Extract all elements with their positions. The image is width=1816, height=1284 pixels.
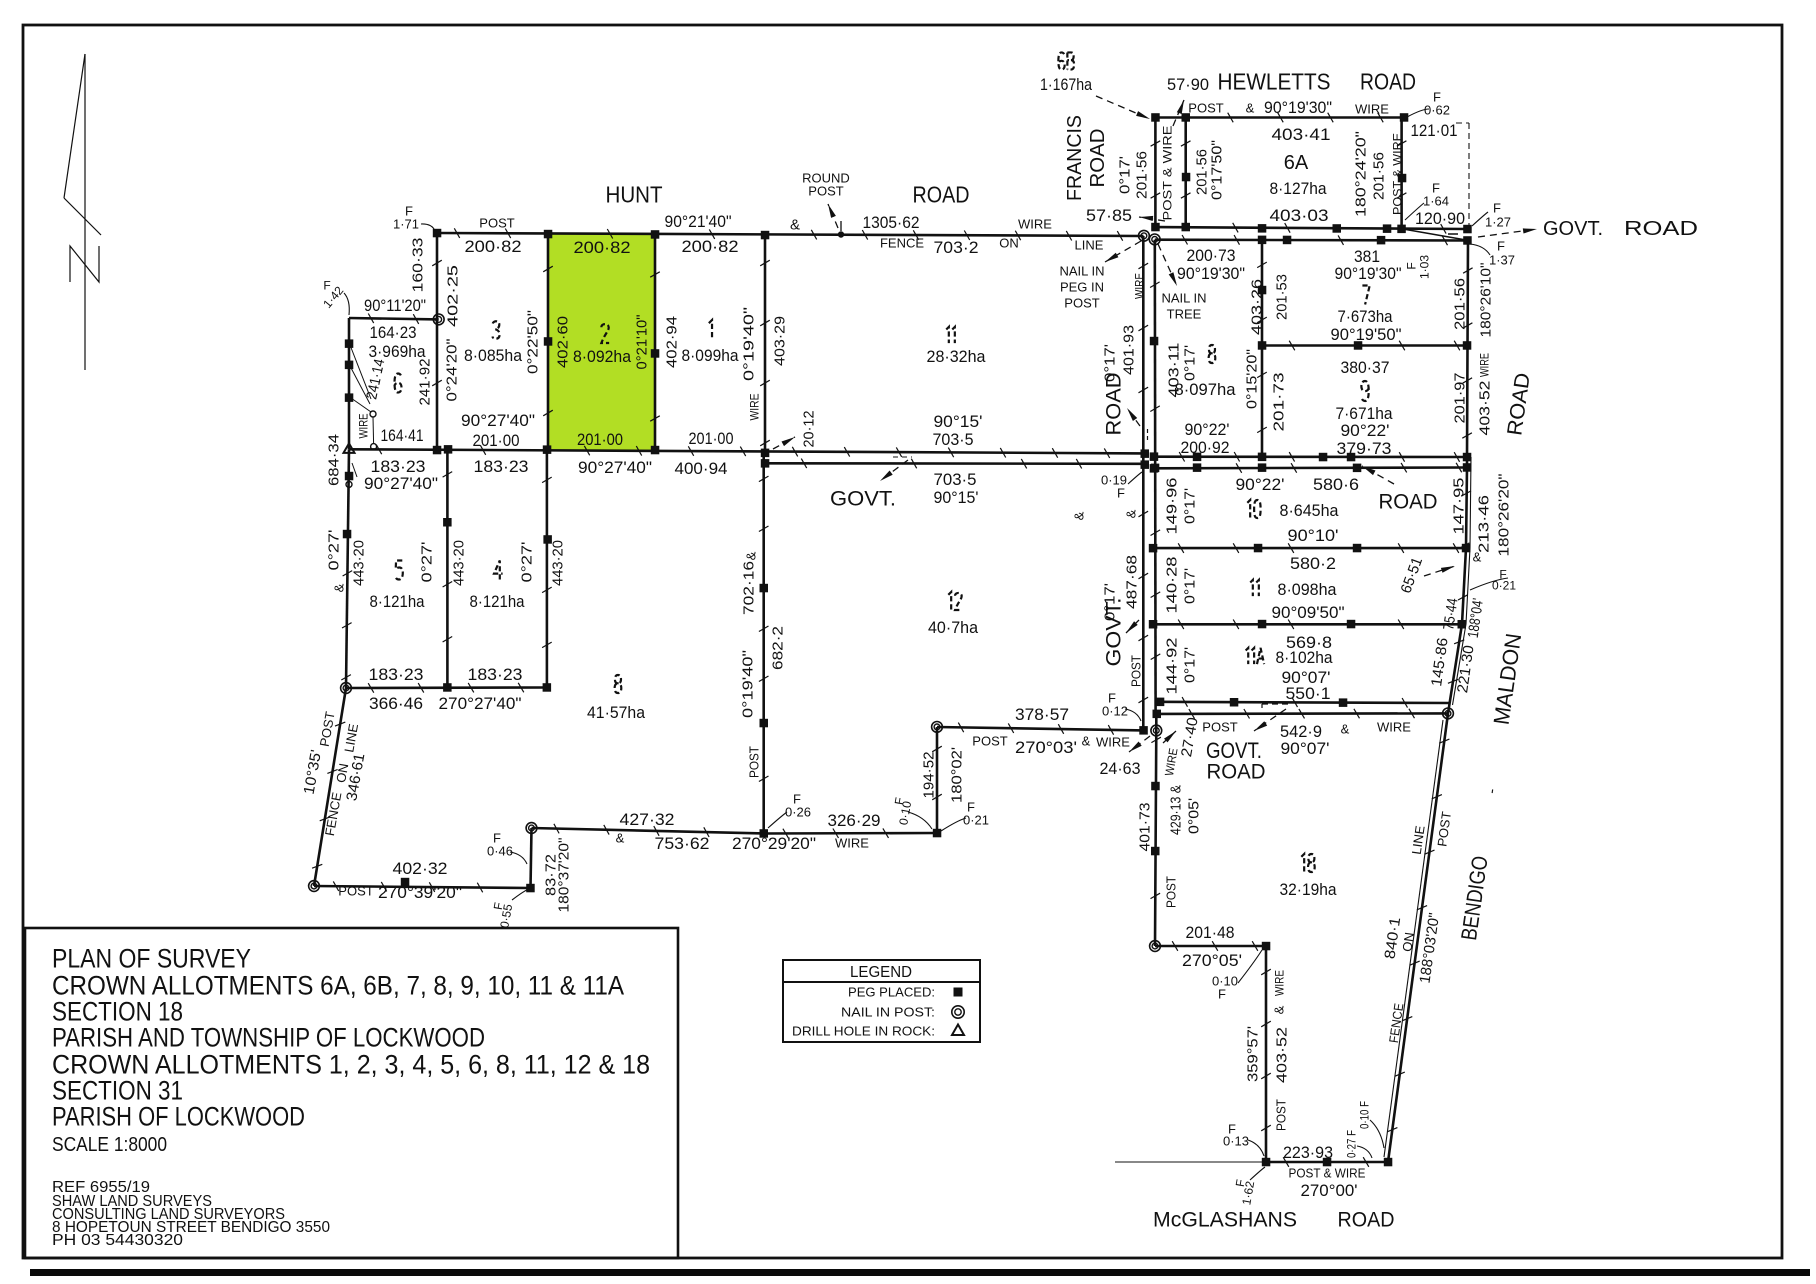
- svg-text:0°27': 0°27': [325, 529, 342, 570]
- svg-text:0°22'50": 0°22'50": [524, 310, 541, 374]
- svg-text:0·10 F: 0·10 F: [1357, 1101, 1371, 1129]
- svg-text:90°27'40": 90°27'40": [364, 474, 438, 493]
- svg-text:403·03: 403·03: [1270, 206, 1329, 225]
- svg-text:8·098ha: 8·098ha: [1278, 580, 1338, 599]
- svg-text:8·102ha: 8·102ha: [1276, 648, 1333, 667]
- svg-text:90°19'30": 90°19'30": [1335, 264, 1402, 283]
- svg-text:F: F: [1497, 239, 1505, 254]
- svg-text:PEG IN: PEG IN: [1060, 280, 1104, 295]
- svg-text:443·20: 443·20: [350, 540, 367, 586]
- svg-text:403·41: 403·41: [1272, 125, 1331, 144]
- svg-text:8·127ha: 8·127ha: [1270, 179, 1327, 198]
- svg-text:SCALE 1:8000: SCALE 1:8000: [52, 1134, 167, 1156]
- svg-text:223·93: 223·93: [1283, 1143, 1333, 1162]
- svg-text:703·5: 703·5: [933, 430, 974, 449]
- svg-text:180°26'10": 180°26'10": [1477, 263, 1494, 338]
- svg-text:90°21'40": 90°21'40": [665, 212, 732, 231]
- svg-text:&: &: [1072, 511, 1087, 520]
- svg-text:ON: ON: [1399, 931, 1417, 952]
- svg-text:703·5: 703·5: [934, 470, 977, 489]
- svg-text:402·32: 402·32: [393, 859, 448, 878]
- svg-text:378·57: 378·57: [1015, 705, 1069, 724]
- svg-text:1·71: 1·71: [393, 217, 419, 232]
- svg-text:180°26'20": 180°26'20": [1495, 474, 1512, 557]
- svg-text:120·90: 120·90: [1415, 209, 1465, 228]
- svg-text:200·73: 200·73: [1187, 246, 1236, 265]
- svg-text:0°27': 0°27': [518, 541, 535, 582]
- svg-text:F: F: [1218, 987, 1226, 1002]
- svg-text:403·26: 403·26: [1248, 279, 1265, 335]
- svg-text:PARISH OF LOCKWOOD: PARISH OF LOCKWOOD: [52, 1102, 305, 1132]
- svg-text:24·63: 24·63: [1100, 759, 1141, 778]
- svg-text:90°27'40": 90°27'40": [461, 411, 535, 430]
- svg-text:403·52: 403·52: [1476, 381, 1493, 436]
- svg-text:201·56: 201·56: [1370, 152, 1387, 200]
- svg-text:0°17'50": 0°17'50": [1208, 140, 1225, 200]
- svg-text:WIRE: WIRE: [1477, 353, 1491, 377]
- svg-text:1·03: 1·03: [1417, 255, 1431, 279]
- svg-text:90°07': 90°07': [1281, 739, 1330, 758]
- svg-text:1·64: 1·64: [1423, 194, 1449, 209]
- svg-text:201·97: 201·97: [1451, 373, 1468, 424]
- svg-text:8·099ha: 8·099ha: [682, 346, 739, 365]
- svg-text:POST: POST: [1188, 101, 1223, 116]
- svg-text:427·32: 427·32: [620, 810, 675, 829]
- svg-text:NAIL IN: NAIL IN: [1059, 264, 1104, 279]
- svg-text:270°03': 270°03': [1015, 738, 1077, 757]
- svg-text:0°17': 0°17': [1181, 568, 1198, 604]
- svg-text:FENCE: FENCE: [880, 236, 924, 251]
- svg-text:366·46: 366·46: [369, 694, 423, 713]
- svg-text:121·01: 121·01: [1411, 121, 1458, 140]
- svg-text:270°39'20": 270°39'20": [378, 883, 462, 902]
- svg-text:41·57ha: 41·57ha: [587, 703, 646, 722]
- svg-text:90°22': 90°22': [1236, 475, 1285, 494]
- svg-text:&: &: [1246, 101, 1255, 116]
- svg-text:0·12: 0·12: [1102, 704, 1128, 719]
- svg-text:0·26: 0·26: [785, 805, 811, 820]
- svg-text:6A: 6A: [1284, 152, 1309, 174]
- svg-text:0·27 F: 0·27 F: [1344, 1130, 1358, 1158]
- svg-text:57·90: 57·90: [1167, 75, 1209, 94]
- svg-text:PEG PLACED:: PEG PLACED:: [848, 985, 935, 1000]
- svg-text:550·1: 550·1: [1286, 684, 1331, 703]
- svg-text:0°27': 0°27': [418, 541, 435, 582]
- svg-text:&: &: [1082, 734, 1091, 749]
- svg-text:WIRE: WIRE: [1272, 970, 1286, 996]
- svg-text:POST: POST: [747, 746, 762, 778]
- svg-text:HEWLETTS: HEWLETTS: [1218, 68, 1331, 94]
- svg-text:201·48: 201·48: [1186, 923, 1235, 942]
- svg-text:164·41: 164·41: [381, 426, 424, 445]
- svg-text:8·121ha: 8·121ha: [370, 592, 425, 611]
- svg-text:POST & WIRE: POST & WIRE: [1289, 1166, 1366, 1181]
- svg-text:201·56: 201·56: [1133, 151, 1150, 199]
- svg-text:326·29: 326·29: [828, 811, 881, 830]
- svg-text:90°09'50": 90°09'50": [1272, 603, 1345, 622]
- svg-text:403·52: 403·52: [1273, 1027, 1290, 1083]
- svg-text:0°21'10": 0°21'10": [633, 315, 650, 370]
- svg-text:POST & WIRE: POST & WIRE: [1160, 126, 1174, 221]
- svg-text:429·13 &: 429·13 &: [1167, 785, 1184, 835]
- svg-text:0°05': 0°05': [1185, 798, 1202, 834]
- svg-text:401·73: 401·73: [1136, 803, 1153, 852]
- svg-text:487·68: 487·68: [1123, 555, 1140, 609]
- svg-text:32·19ha: 32·19ha: [1280, 880, 1337, 899]
- svg-text:POST: POST: [1202, 720, 1237, 735]
- svg-text:PH 03 54430320: PH 03 54430320: [52, 1232, 183, 1249]
- svg-text:WIRE: WIRE: [1355, 102, 1389, 117]
- svg-text:&: &: [1341, 722, 1350, 737]
- svg-text:POST: POST: [1064, 296, 1099, 311]
- svg-text:7·673ha: 7·673ha: [1338, 307, 1393, 326]
- svg-text:149·96: 149·96: [1163, 478, 1180, 535]
- svg-text:90°22': 90°22': [1185, 420, 1230, 439]
- svg-text:147·95: 147·95: [1450, 478, 1467, 535]
- svg-text:WIRE: WIRE: [1096, 735, 1130, 750]
- svg-text:90°11'20": 90°11'20": [364, 296, 426, 315]
- svg-text:90°10': 90°10': [1288, 526, 1339, 545]
- svg-text:0°19'40": 0°19'40": [739, 650, 756, 718]
- svg-text:3·969ha: 3·969ha: [369, 342, 426, 361]
- svg-text:0°17': 0°17': [1181, 345, 1198, 381]
- svg-text:POST: POST: [1164, 876, 1179, 908]
- svg-text:ROAD: ROAD: [1087, 129, 1109, 188]
- svg-text:144·92: 144·92: [1163, 638, 1180, 695]
- svg-text:&: &: [616, 831, 625, 846]
- svg-text:0°17': 0°17': [1181, 488, 1198, 524]
- svg-text:201·53: 201·53: [1273, 274, 1290, 320]
- svg-text:WIRE: WIRE: [835, 836, 869, 851]
- svg-text:GOVT.: GOVT.: [1206, 738, 1262, 763]
- svg-text:0°17': 0°17': [1101, 583, 1118, 621]
- svg-text:1·167ha: 1·167ha: [1040, 75, 1092, 94]
- svg-text:183·23: 183·23: [369, 665, 424, 684]
- svg-text:ROAD: ROAD: [913, 181, 970, 207]
- svg-text:NAIL IN POST:: NAIL IN POST:: [841, 1005, 935, 1020]
- svg-text:403·29: 403·29: [771, 316, 788, 366]
- svg-text:20·12: 20·12: [800, 411, 817, 448]
- svg-text:90°22': 90°22': [1341, 421, 1390, 440]
- svg-text:90°15': 90°15': [934, 412, 983, 431]
- svg-text:194·52: 194·52: [920, 752, 937, 799]
- svg-text:200·92: 200·92: [1181, 438, 1230, 457]
- svg-text:McGLASHANS: McGLASHANS: [1153, 1209, 1297, 1232]
- svg-text:POST & WIRE: POST & WIRE: [1390, 133, 1404, 215]
- svg-text:F: F: [1404, 262, 1418, 269]
- svg-text:HUNT: HUNT: [606, 181, 663, 207]
- svg-text:8·121ha: 8·121ha: [470, 592, 525, 611]
- svg-text:ROAD: ROAD: [1207, 761, 1266, 784]
- svg-text:&: &: [744, 551, 759, 560]
- svg-text:201·00: 201·00: [577, 430, 623, 449]
- svg-text:ROAD: ROAD: [1379, 491, 1438, 514]
- svg-text:&: &: [332, 583, 347, 592]
- svg-text:270°27'40": 270°27'40": [439, 694, 522, 713]
- svg-text:753·62: 753·62: [655, 834, 710, 853]
- svg-text:POST: POST: [338, 884, 373, 899]
- svg-text:FRANCIS: FRANCIS: [1064, 115, 1086, 201]
- svg-text:TREE: TREE: [1167, 307, 1202, 322]
- svg-text:&: &: [790, 216, 800, 233]
- svg-text:&: &: [1124, 509, 1139, 518]
- svg-text:POST: POST: [479, 216, 514, 231]
- svg-text:POST: POST: [808, 184, 843, 199]
- svg-text:0°17': 0°17': [1116, 156, 1133, 194]
- svg-text:201·00: 201·00: [473, 431, 520, 450]
- svg-text:213·46: 213·46: [1475, 495, 1492, 553]
- svg-text:702·16: 702·16: [740, 561, 757, 615]
- svg-text:200·82: 200·82: [682, 237, 739, 256]
- svg-text:90°19'50": 90°19'50": [1331, 325, 1402, 344]
- svg-text:F: F: [1117, 486, 1125, 501]
- svg-text:402·25: 402·25: [444, 265, 461, 327]
- svg-text:0°19'40": 0°19'40": [740, 307, 757, 381]
- svg-text:0°24'20": 0°24'20": [443, 339, 460, 402]
- svg-text:0·21: 0·21: [963, 813, 989, 828]
- svg-text:241·92: 241·92: [416, 359, 433, 406]
- svg-text:ON: ON: [999, 236, 1019, 251]
- svg-text:POST: POST: [1129, 655, 1144, 687]
- svg-text:379·73: 379·73: [1337, 439, 1392, 458]
- svg-text:160·33: 160·33: [409, 238, 426, 293]
- svg-text:443·20: 443·20: [450, 540, 467, 586]
- svg-text:NAIL IN: NAIL IN: [1161, 291, 1206, 306]
- svg-text:400·94: 400·94: [675, 459, 728, 478]
- svg-text:WIRE: WIRE: [1377, 720, 1411, 735]
- svg-text:684·34: 684·34: [325, 434, 342, 486]
- svg-text:183·23: 183·23: [474, 457, 529, 476]
- svg-text:180°24'20": 180°24'20": [1352, 131, 1369, 217]
- svg-text:PLAN OF SURVEY: PLAN OF SURVEY: [52, 944, 251, 974]
- svg-text:580·2: 580·2: [1290, 554, 1336, 573]
- svg-text:F: F: [1493, 201, 1501, 216]
- svg-text:90°15': 90°15': [934, 488, 979, 507]
- svg-text:&: &: [1272, 1005, 1287, 1014]
- svg-text:580·6: 580·6: [1313, 475, 1359, 494]
- svg-text:LINE: LINE: [1075, 238, 1104, 253]
- svg-text:LEGEND: LEGEND: [850, 964, 912, 981]
- svg-text:POST: POST: [972, 734, 1007, 749]
- svg-text:8·085ha: 8·085ha: [464, 346, 523, 365]
- svg-text:28·32ha: 28·32ha: [927, 347, 987, 366]
- svg-text:402·60: 402·60: [554, 316, 571, 368]
- svg-text:0°17': 0°17': [1181, 647, 1198, 683]
- svg-text:PARISH AND TOWNSHIP OF LOCKWOO: PARISH AND TOWNSHIP OF LOCKWOOD: [52, 1023, 485, 1053]
- svg-text:0·62: 0·62: [1424, 103, 1450, 118]
- svg-text:359°57': 359°57': [1244, 1026, 1261, 1082]
- svg-text:WIRE: WIRE: [1018, 217, 1052, 232]
- svg-text:270°29'20": 270°29'20": [732, 834, 816, 853]
- svg-text:201·56: 201·56: [1451, 278, 1468, 330]
- svg-text:WIRE: WIRE: [1132, 273, 1146, 299]
- svg-text:183·23: 183·23: [468, 665, 523, 684]
- svg-text:&: &: [1473, 550, 1482, 565]
- svg-text:8·097ha: 8·097ha: [1175, 380, 1237, 399]
- svg-text:GOVT.: GOVT.: [830, 488, 896, 511]
- svg-text:57·85: 57·85: [1086, 206, 1132, 225]
- svg-text:WIRE: WIRE: [356, 414, 370, 439]
- svg-text:1305·62: 1305·62: [863, 213, 920, 232]
- svg-text:ROAD: ROAD: [1624, 218, 1698, 240]
- svg-text:0°17': 0°17': [1101, 344, 1118, 382]
- svg-text:90°19'30": 90°19'30": [1177, 264, 1245, 283]
- svg-text:WIRE: WIRE: [747, 394, 761, 421]
- svg-text:0°15'20": 0°15'20": [1243, 349, 1260, 409]
- svg-text:ROAD: ROAD: [1360, 68, 1416, 94]
- svg-text:1·27: 1·27: [1485, 215, 1511, 230]
- svg-text:DRILL HOLE IN ROCK:: DRILL HOLE IN ROCK:: [792, 1024, 935, 1039]
- svg-text:0·46: 0·46: [487, 844, 513, 859]
- svg-text:164·23: 164·23: [370, 323, 417, 342]
- svg-text:40·7ha: 40·7ha: [928, 618, 979, 637]
- svg-text:201·00: 201·00: [689, 429, 734, 448]
- svg-text:90°19'30": 90°19'30": [1264, 98, 1332, 117]
- svg-text:380·37: 380·37: [1341, 358, 1390, 377]
- svg-text:200·82: 200·82: [465, 237, 522, 256]
- svg-text:402·94: 402·94: [663, 316, 680, 368]
- svg-text:POST: POST: [1274, 1099, 1289, 1131]
- svg-text:270°05': 270°05': [1182, 951, 1242, 970]
- svg-text:140·28: 140·28: [1163, 557, 1180, 614]
- svg-text:8·092ha: 8·092ha: [573, 347, 632, 366]
- svg-text:443·20: 443·20: [549, 540, 566, 586]
- svg-text:401·93: 401·93: [1120, 325, 1137, 375]
- svg-text:0·21: 0·21: [1492, 578, 1516, 592]
- svg-text:180°02': 180°02': [948, 747, 965, 803]
- svg-text:703·2: 703·2: [934, 238, 979, 257]
- svg-text:682·2: 682·2: [769, 626, 786, 670]
- svg-text:90°27'40": 90°27'40": [578, 458, 652, 477]
- svg-text:8·645ha: 8·645ha: [1280, 501, 1340, 520]
- svg-text:201·73: 201·73: [1270, 373, 1287, 432]
- svg-text:200·82: 200·82: [574, 238, 631, 257]
- svg-text:ROAD: ROAD: [1338, 1209, 1395, 1232]
- svg-text:180°37'20": 180°37'20": [555, 838, 572, 913]
- svg-text:270°00': 270°00': [1301, 1181, 1358, 1200]
- svg-text:GOVT.: GOVT.: [1543, 218, 1603, 240]
- svg-text:0·13: 0·13: [1223, 1134, 1249, 1149]
